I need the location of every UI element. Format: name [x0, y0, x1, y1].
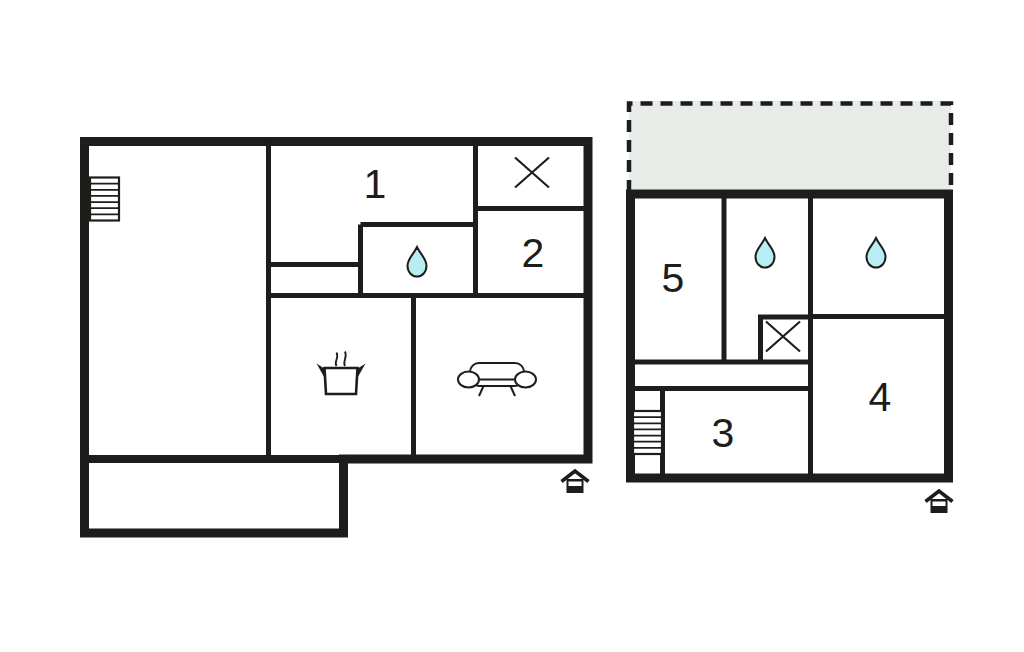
stairs-icon — [90, 178, 119, 221]
room-4-label: 4 — [869, 374, 892, 420]
sofa-armrest-left — [458, 372, 479, 388]
left-plan-outer-walls — [85, 142, 589, 534]
room-5-label: 5 — [662, 255, 685, 301]
room-2-label: 2 — [522, 230, 545, 276]
left-floor-plan: 1 2 — [85, 142, 589, 534]
house-entrance-icon — [562, 471, 589, 493]
room-1-label: 1 — [364, 161, 387, 207]
floor-plan-page: 1 2 5 3 4 — [0, 0, 1024, 652]
sofa-armrest-right — [515, 372, 536, 388]
floor-plan-drawing: 1 2 5 3 4 — [0, 0, 1024, 652]
room-3-label: 3 — [712, 410, 735, 456]
right-plan-outer-walls — [631, 194, 949, 478]
right-floor-plan: 5 3 4 — [629, 101, 953, 513]
terrace-dashed-area — [629, 101, 951, 192]
pot-body — [325, 368, 358, 394]
house-entrance-icon — [926, 491, 953, 513]
stairs-icon — [633, 411, 662, 454]
